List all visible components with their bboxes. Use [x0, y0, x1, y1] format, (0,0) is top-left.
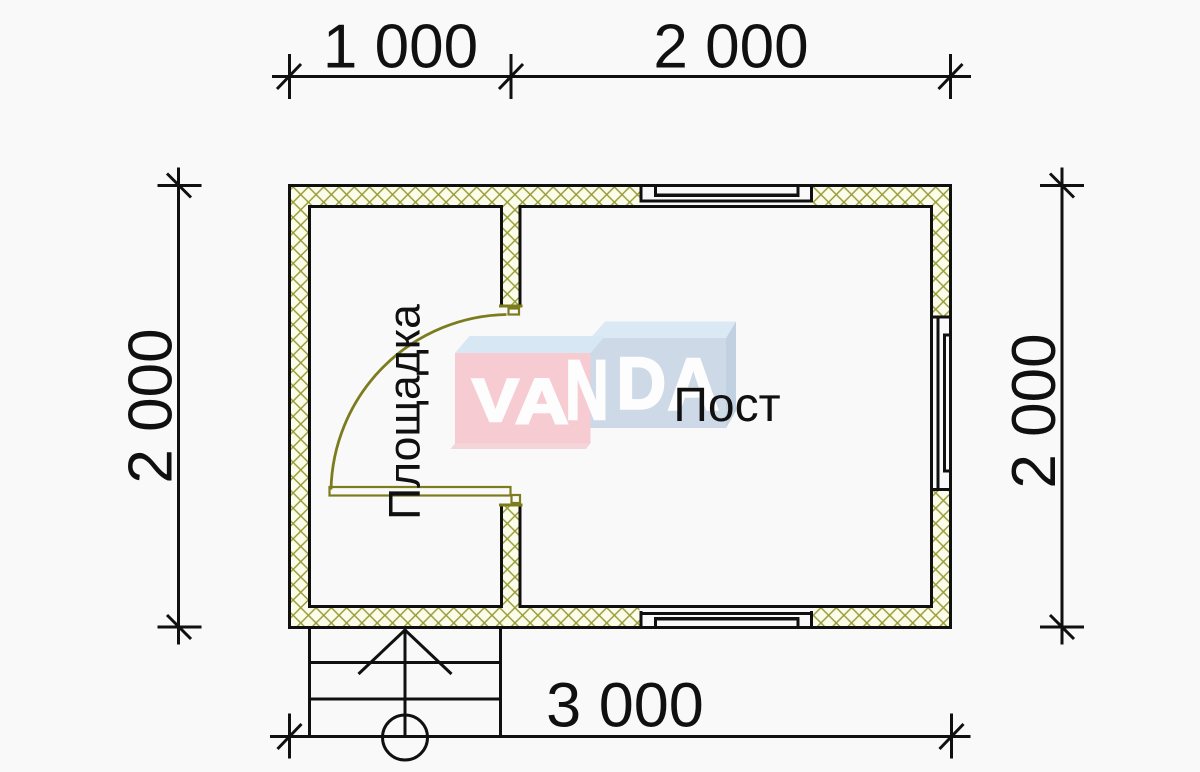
svg-text:A: A: [515, 365, 569, 437]
svg-text:2 000: 2 000: [117, 328, 186, 483]
svg-text:2 000: 2 000: [1000, 333, 1069, 488]
svg-text:N: N: [565, 343, 609, 437]
svg-text:Площадка: Площадка: [381, 304, 430, 520]
svg-text:1 000: 1 000: [323, 13, 478, 82]
svg-text:D: D: [617, 344, 667, 425]
svg-text:Пост: Пост: [673, 379, 780, 432]
svg-text:2 000: 2 000: [653, 13, 808, 82]
svg-text:V: V: [472, 367, 519, 434]
svg-text:3 000: 3 000: [546, 671, 704, 741]
